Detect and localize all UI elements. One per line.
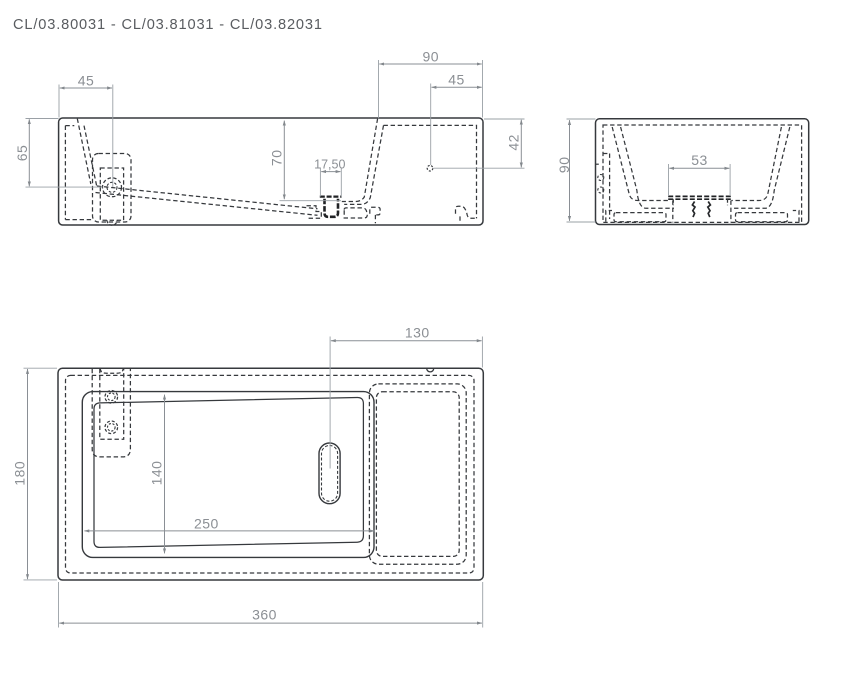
svg-text:17,50: 17,50 <box>314 158 345 172</box>
svg-text:130: 130 <box>405 325 430 341</box>
svg-text:70: 70 <box>269 150 285 167</box>
svg-text:180: 180 <box>12 461 28 486</box>
svg-text:140: 140 <box>148 461 164 486</box>
svg-text:45: 45 <box>448 72 465 88</box>
svg-text:CL/03.80031 - CL/03.81031 - CL: CL/03.80031 - CL/03.81031 - CL/03.82031 <box>13 17 323 33</box>
svg-text:42: 42 <box>506 134 522 151</box>
svg-text:250: 250 <box>194 515 219 531</box>
svg-text:90: 90 <box>556 157 572 174</box>
svg-text:360: 360 <box>252 607 277 623</box>
svg-text:53: 53 <box>691 152 708 168</box>
svg-text:45: 45 <box>78 72 95 88</box>
svg-text:90: 90 <box>423 48 440 64</box>
svg-text:65: 65 <box>14 145 30 162</box>
